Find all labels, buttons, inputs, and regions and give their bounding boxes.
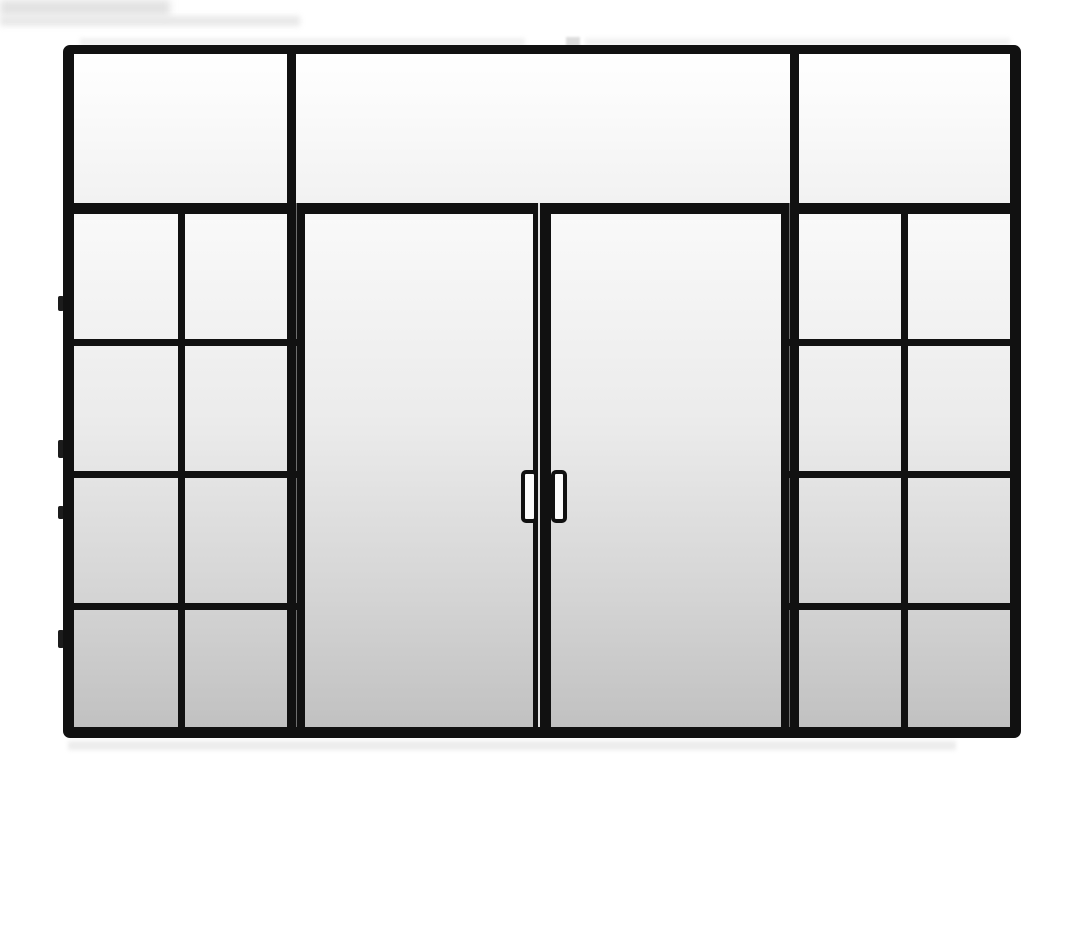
right-sidelite-rail-2 [781,471,1010,478]
right-sidelite-mullion [901,203,908,727]
right-sidelite-rail-1 [781,339,1010,346]
left-sidelite-rail-3 [74,603,305,610]
sidelite-bottom-shadow [0,16,300,26]
left-door-hinge-stile [297,203,305,727]
left-sidelite-mullion [178,203,185,727]
door-bottom-shadow [0,0,170,16]
right-door-meeting-stile [540,203,551,727]
bottom-halo-artifact [68,741,956,750]
product-image-canvas [0,0,1069,934]
right-door-hinge-stile [781,203,789,727]
left-door-jamb-assembly [287,54,305,727]
right-sidelite-rail-3 [781,603,1010,610]
right-jamb-bar [790,54,799,727]
left-sidelite-rail-1 [74,339,305,346]
steel-door-frame [63,45,1021,738]
left-sidelite-rail-2 [74,471,305,478]
right-door-handle [551,470,567,523]
left-door-handle [521,470,538,523]
right-door-jamb-assembly [781,54,799,727]
left-jamb-bar [287,54,296,727]
transom-glass [74,54,1010,203]
